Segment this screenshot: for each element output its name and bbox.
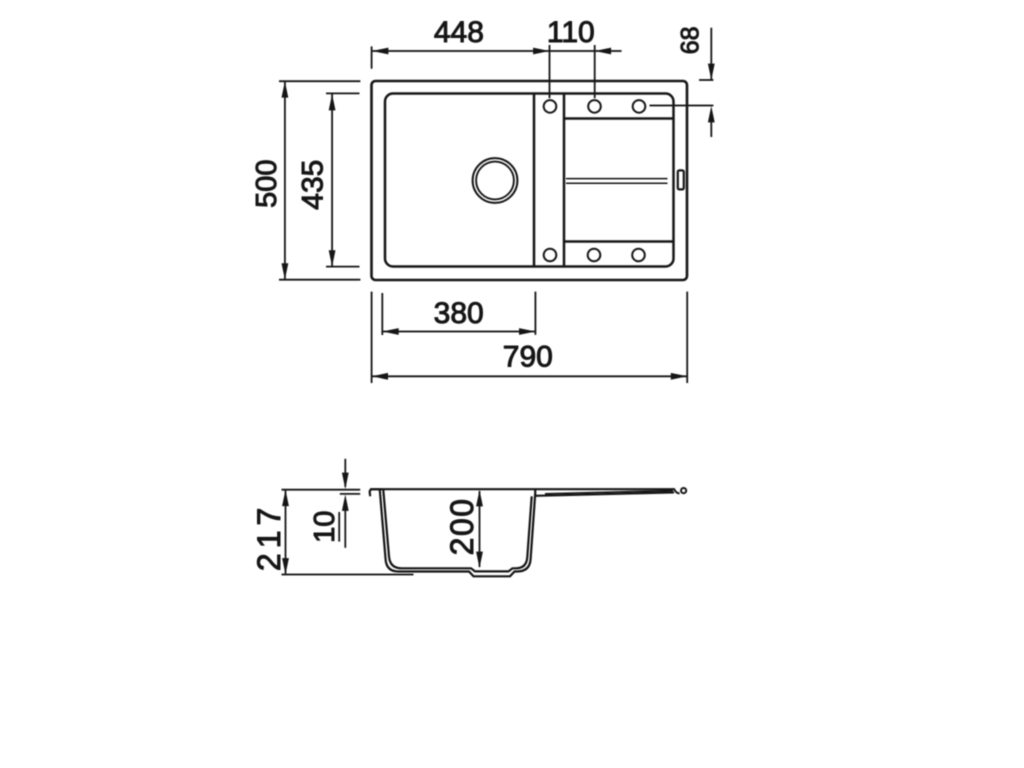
svg-text:110: 110 <box>547 16 595 49</box>
svg-text:217: 217 <box>251 503 287 571</box>
svg-text:68: 68 <box>677 26 705 54</box>
svg-text:10: 10 <box>309 511 341 543</box>
svg-text:500: 500 <box>251 160 283 208</box>
svg-text:435: 435 <box>296 160 329 210</box>
svg-text:448: 448 <box>434 16 484 49</box>
svg-text:790: 790 <box>503 340 553 373</box>
svg-text:380: 380 <box>434 297 484 330</box>
svg-text:200: 200 <box>444 497 480 555</box>
